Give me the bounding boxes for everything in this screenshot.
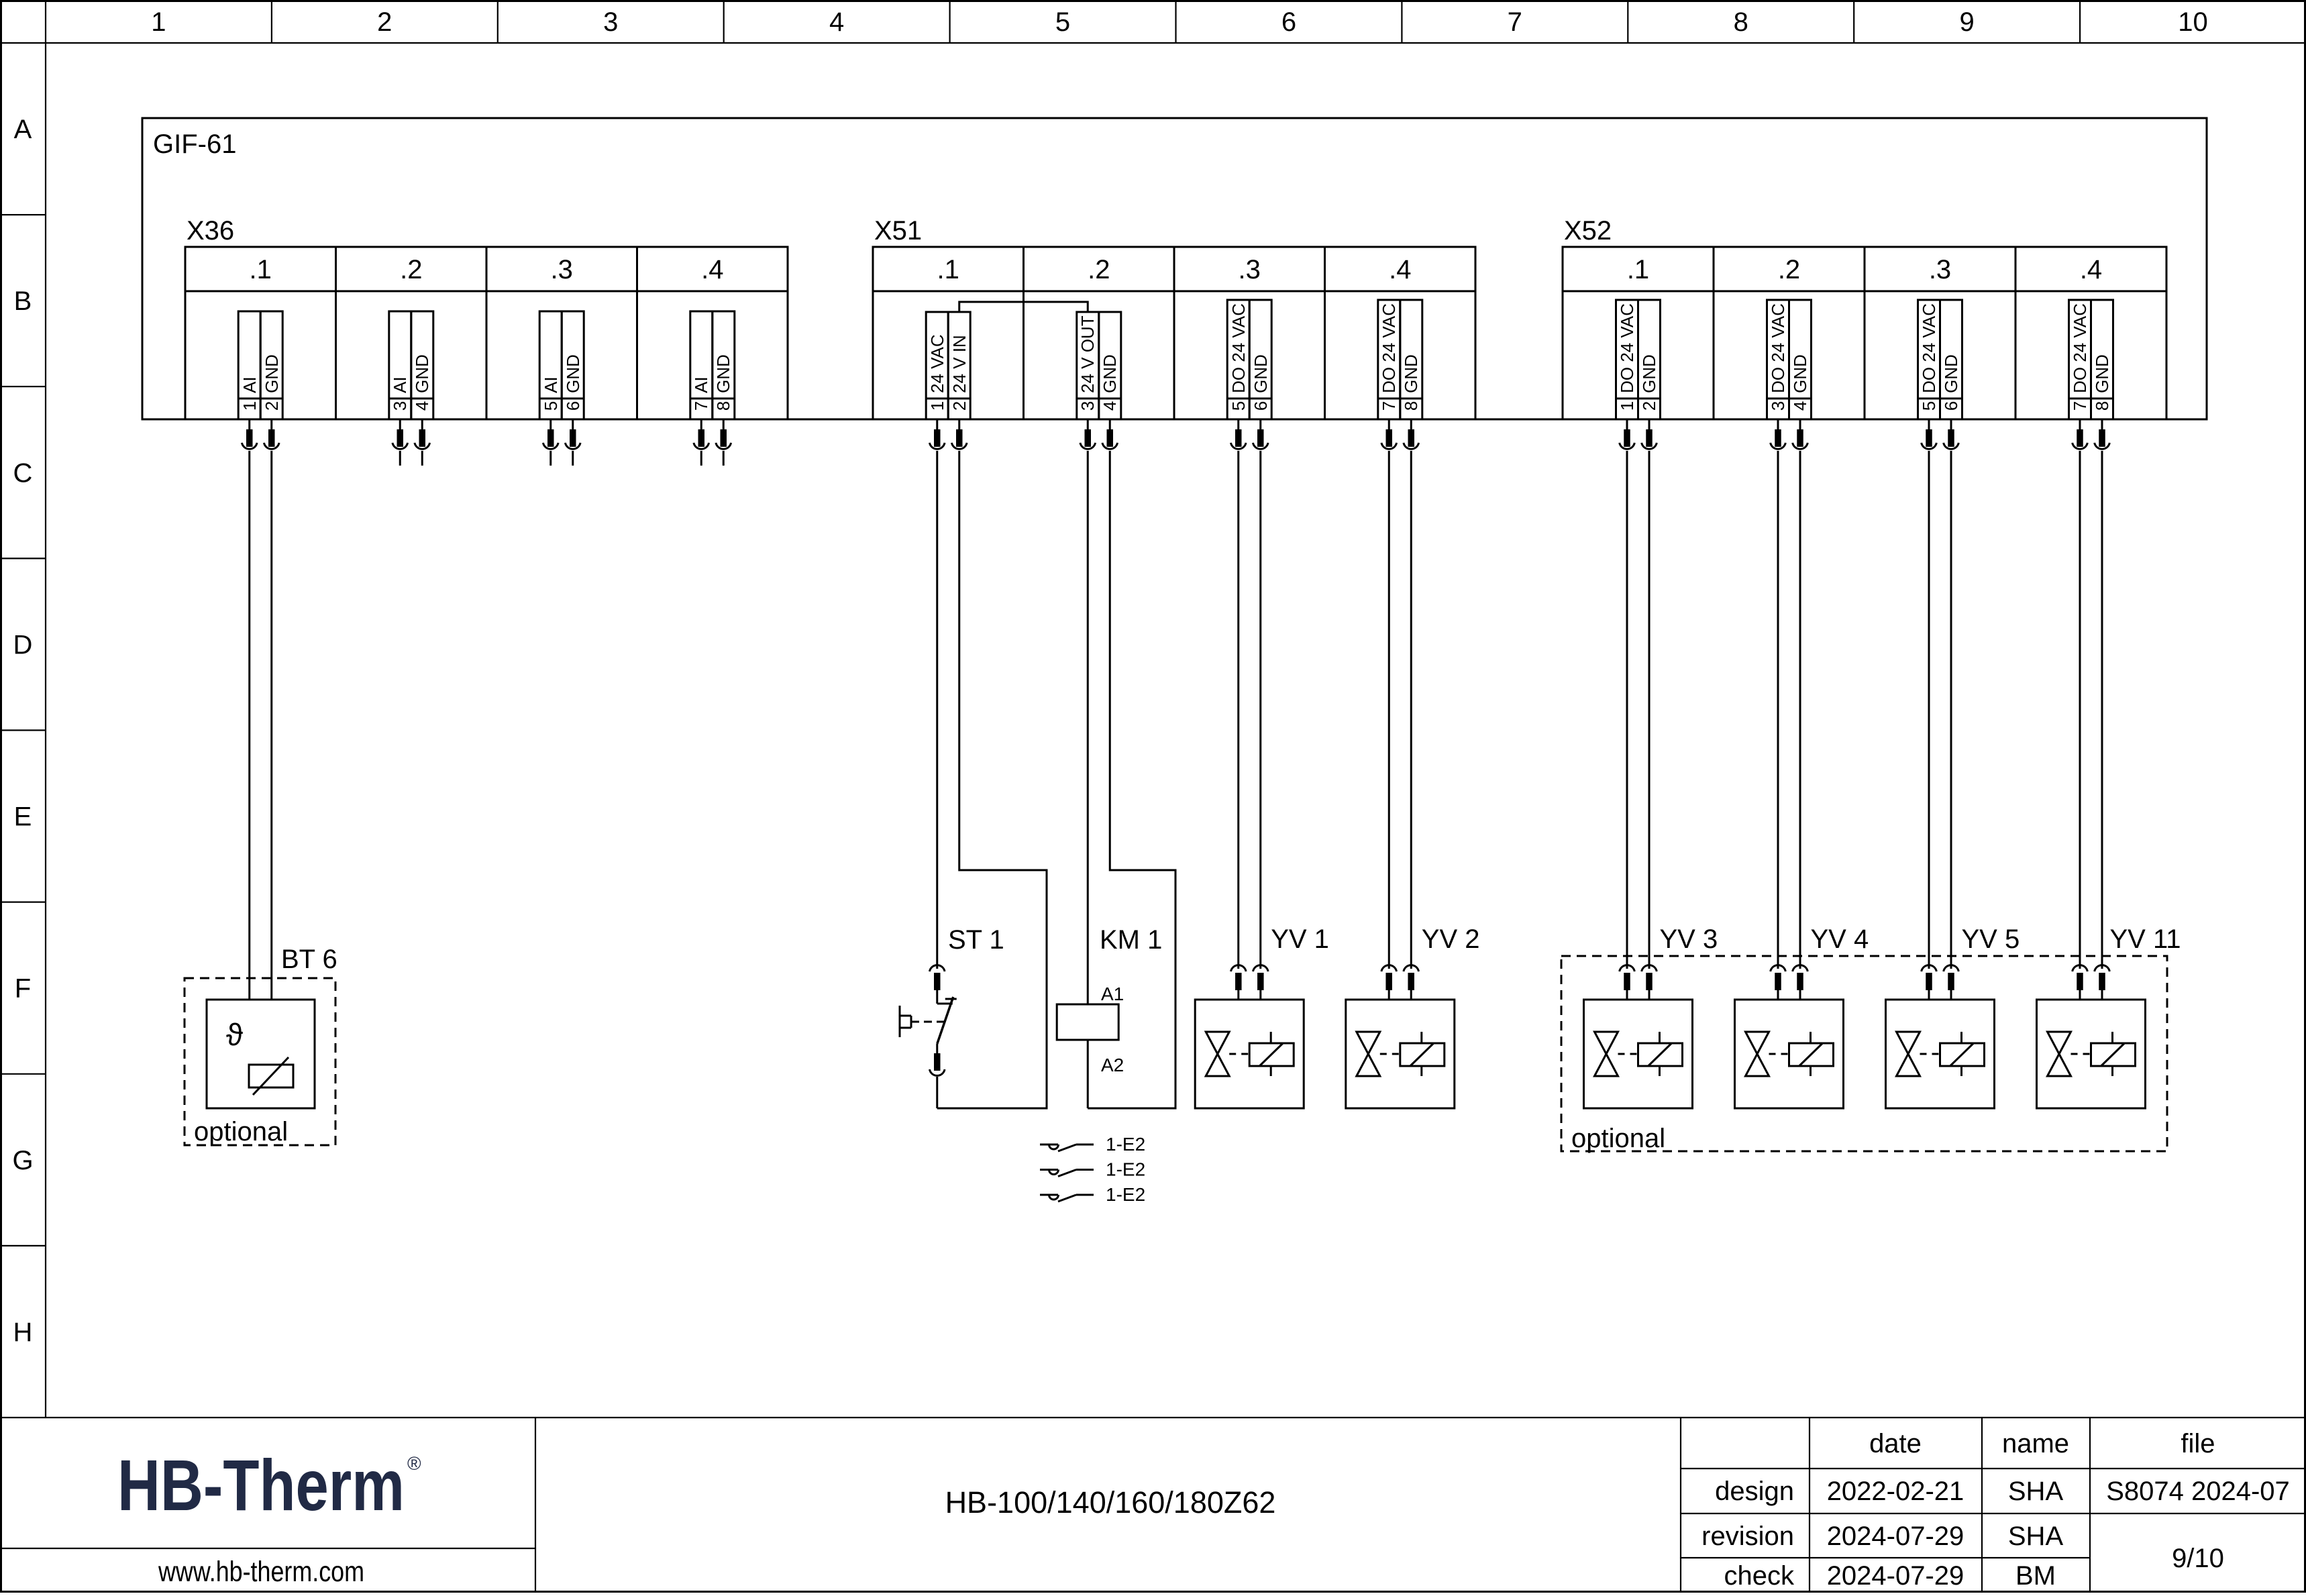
svg-text:C: C	[13, 458, 33, 488]
svg-text:GND: GND	[1251, 354, 1271, 393]
svg-text:2024-07-29: 2024-07-29	[1827, 1522, 1964, 1551]
svg-text:4: 4	[1100, 401, 1120, 411]
svg-text:5: 5	[1055, 7, 1070, 37]
svg-text:8: 8	[1401, 401, 1421, 411]
svg-text:check: check	[1724, 1561, 1795, 1591]
svg-text:ϑ: ϑ	[226, 1017, 243, 1052]
svg-text:F: F	[15, 974, 31, 1004]
svg-text:YV 2: YV 2	[1422, 924, 1480, 954]
svg-text:6: 6	[1251, 401, 1271, 411]
svg-text:.3: .3	[1929, 255, 1951, 284]
svg-text:YV 3: YV 3	[1660, 924, 1718, 954]
svg-text:1: 1	[151, 7, 166, 37]
svg-text:KM 1: KM 1	[1100, 925, 1162, 955]
svg-text:24 V OUT: 24 V OUT	[1078, 315, 1098, 393]
svg-text:1: 1	[927, 401, 947, 411]
svg-text:3: 3	[390, 401, 410, 411]
svg-text:24 VAC: 24 VAC	[927, 334, 947, 393]
svg-text:E: E	[14, 802, 32, 832]
svg-text:X36: X36	[187, 216, 234, 246]
svg-text:ST 1: ST 1	[948, 925, 1004, 955]
svg-text:7: 7	[1379, 401, 1399, 411]
svg-text:DO 24 VAC: DO 24 VAC	[1228, 303, 1249, 393]
svg-text:A1: A1	[1101, 983, 1124, 1004]
svg-text:6: 6	[1941, 401, 1961, 411]
svg-text:date: date	[1869, 1429, 1922, 1458]
svg-text:S8074 2024-07: S8074 2024-07	[2106, 1477, 2290, 1506]
svg-text:X51: X51	[874, 216, 922, 246]
svg-text:.2: .2	[400, 255, 422, 284]
svg-text:D: D	[13, 630, 33, 659]
svg-text:.4: .4	[701, 255, 723, 284]
svg-text:®: ®	[407, 1453, 421, 1474]
svg-text:GND: GND	[563, 354, 583, 393]
svg-text:BM: BM	[2015, 1561, 2056, 1591]
svg-text:8: 8	[2092, 401, 2112, 411]
svg-text:DO 24 VAC: DO 24 VAC	[2070, 303, 2090, 393]
svg-text:GND: GND	[1941, 354, 1961, 393]
svg-text:SHA: SHA	[2008, 1477, 2064, 1506]
svg-text:GIF-61: GIF-61	[153, 129, 236, 159]
svg-text:2024-07-29: 2024-07-29	[1827, 1561, 1964, 1591]
svg-text:1-E2: 1-E2	[1106, 1159, 1145, 1180]
svg-text:7: 7	[691, 401, 711, 411]
svg-text:GND: GND	[2092, 354, 2112, 393]
svg-text:2: 2	[1639, 401, 1659, 411]
svg-text:1: 1	[240, 401, 260, 411]
svg-text:optional: optional	[194, 1117, 288, 1147]
svg-text:A2: A2	[1101, 1055, 1124, 1075]
svg-text:DO 24 VAC: DO 24 VAC	[1617, 303, 1637, 393]
svg-text:.1: .1	[1627, 255, 1649, 284]
svg-text:GND: GND	[1790, 354, 1810, 393]
svg-text:8: 8	[713, 401, 733, 411]
svg-text:1: 1	[1617, 401, 1637, 411]
svg-text:4: 4	[1790, 401, 1810, 411]
svg-text:1-E2: 1-E2	[1106, 1184, 1145, 1205]
svg-text:2022-02-21: 2022-02-21	[1827, 1477, 1964, 1506]
svg-text:optional: optional	[1571, 1124, 1665, 1153]
svg-text:DO 24 VAC: DO 24 VAC	[1919, 303, 1939, 393]
svg-text:9/10: 9/10	[2172, 1544, 2224, 1573]
svg-text:10: 10	[2178, 7, 2208, 37]
svg-text:GND: GND	[1639, 354, 1659, 393]
svg-text:9: 9	[1959, 7, 1974, 37]
svg-text:design: design	[1715, 1477, 1794, 1506]
svg-text:AI: AI	[691, 376, 711, 393]
svg-text:7: 7	[1508, 7, 1522, 37]
svg-text:name: name	[2002, 1429, 2069, 1458]
svg-text:4: 4	[412, 401, 432, 411]
svg-text:file: file	[2181, 1429, 2215, 1458]
svg-text:7: 7	[2070, 401, 2090, 411]
svg-text:24 V IN: 24 V IN	[949, 335, 969, 393]
svg-text:B: B	[14, 286, 32, 316]
svg-text:5: 5	[1919, 401, 1939, 411]
svg-text:6: 6	[1281, 7, 1296, 37]
svg-text:5: 5	[541, 401, 561, 411]
svg-text:.1: .1	[250, 255, 272, 284]
svg-text:.2: .2	[1778, 255, 1800, 284]
svg-text:2: 2	[262, 401, 282, 411]
svg-text:5: 5	[1228, 401, 1249, 411]
svg-text:3: 3	[1078, 401, 1098, 411]
svg-text:X52: X52	[1564, 216, 1612, 246]
svg-text:AI: AI	[240, 376, 260, 393]
svg-text:2: 2	[949, 401, 969, 411]
svg-text:HB-Therm: HB-Therm	[117, 1444, 405, 1526]
svg-text:AI: AI	[541, 376, 561, 393]
svg-text:8: 8	[1734, 7, 1748, 37]
svg-text:GND: GND	[412, 354, 432, 393]
svg-text:.3: .3	[551, 255, 573, 284]
svg-text:.4: .4	[1389, 255, 1411, 284]
svg-text:GND: GND	[1100, 354, 1120, 393]
svg-text:3: 3	[603, 7, 618, 37]
svg-text:.4: .4	[2080, 255, 2102, 284]
svg-text:1-E2: 1-E2	[1106, 1134, 1145, 1155]
svg-text:.1: .1	[937, 255, 959, 284]
svg-text:.3: .3	[1239, 255, 1261, 284]
svg-text:YV 11: YV 11	[2110, 924, 2181, 954]
svg-text:www.hb-therm.com: www.hb-therm.com	[158, 1556, 364, 1588]
svg-text:G: G	[12, 1146, 33, 1175]
svg-text:.2: .2	[1088, 255, 1110, 284]
svg-text:GND: GND	[262, 354, 282, 393]
svg-text:YV 1: YV 1	[1271, 924, 1329, 954]
svg-text:DO 24 VAC: DO 24 VAC	[1768, 303, 1788, 393]
svg-text:6: 6	[563, 401, 583, 411]
svg-text:BT 6: BT 6	[281, 945, 337, 974]
svg-text:DO 24 VAC: DO 24 VAC	[1379, 303, 1399, 393]
svg-text:YV 4: YV 4	[1811, 924, 1869, 954]
svg-text:H: H	[13, 1318, 33, 1347]
svg-text:YV 5: YV 5	[1962, 924, 2020, 954]
svg-text:4: 4	[829, 7, 844, 37]
svg-text:GND: GND	[713, 354, 733, 393]
svg-text:AI: AI	[390, 376, 410, 393]
svg-text:GND: GND	[1401, 354, 1421, 393]
svg-text:SHA: SHA	[2008, 1522, 2064, 1551]
svg-text:3: 3	[1768, 401, 1788, 411]
svg-text:HB-100/140/160/180Z62: HB-100/140/160/180Z62	[945, 1485, 1276, 1520]
svg-text:2: 2	[377, 7, 392, 37]
svg-text:revision: revision	[1701, 1522, 1794, 1551]
svg-text:A: A	[14, 115, 32, 144]
